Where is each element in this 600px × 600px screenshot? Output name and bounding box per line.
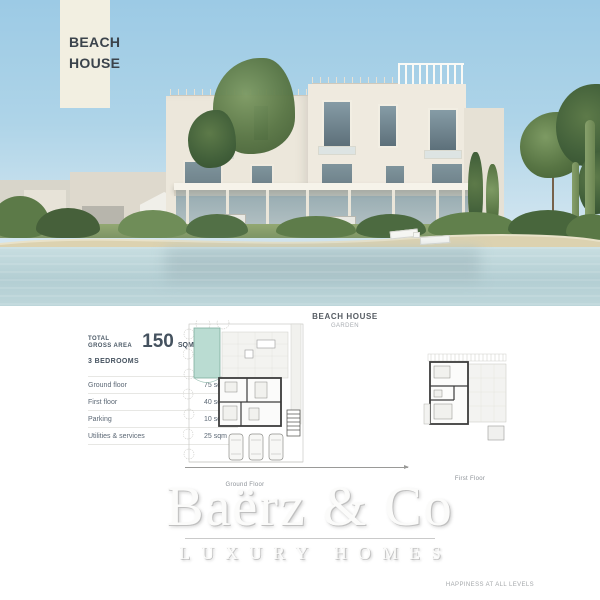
canopy-shadow <box>174 190 470 196</box>
badge-line2: HOUSE <box>69 53 110 74</box>
window <box>428 108 458 152</box>
balcony-glass <box>424 150 462 159</box>
canopy <box>174 183 470 190</box>
first-floor-plan <box>418 352 514 446</box>
watermark-divider <box>185 538 435 539</box>
watermark: Baërz & Co LUXURY HOMES <box>150 478 470 564</box>
floorplan-sheet: TOTAL GROSS AREA 150 SQM 3 BEDROOMS Grou… <box>0 306 600 600</box>
beach-house-badge: BEACH HOUSE <box>60 0 110 108</box>
ground-floor-plan <box>183 320 311 468</box>
badge-line1: BEACH <box>69 32 110 53</box>
window <box>378 104 398 148</box>
total-area-label: TOTAL GROSS AREA <box>88 336 132 350</box>
brochure-page: BEACH HOUSE TOTAL GROSS AREA 150 SQM 3 B… <box>0 0 600 600</box>
brand-logo: Baërz & Co <box>150 478 470 536</box>
balcony-glass <box>318 146 356 155</box>
lagoon-water <box>0 247 600 306</box>
tree <box>188 110 236 168</box>
total-label-line2: GROSS AREA <box>88 343 132 350</box>
brand-tagline: LUXURY HOMES <box>150 543 470 564</box>
dimension-line <box>185 467 408 468</box>
property-photo: BEACH HOUSE <box>0 0 600 306</box>
window <box>322 100 352 148</box>
side-table <box>413 232 420 238</box>
total-area-value: 150 <box>142 333 174 350</box>
water-ripples <box>0 247 600 306</box>
footer-note: HAPPINESS AT ALL LEVELS <box>438 582 542 588</box>
total-label-line1: TOTAL <box>88 336 132 343</box>
roof-pergola <box>398 63 464 84</box>
roof-railing <box>312 77 398 84</box>
